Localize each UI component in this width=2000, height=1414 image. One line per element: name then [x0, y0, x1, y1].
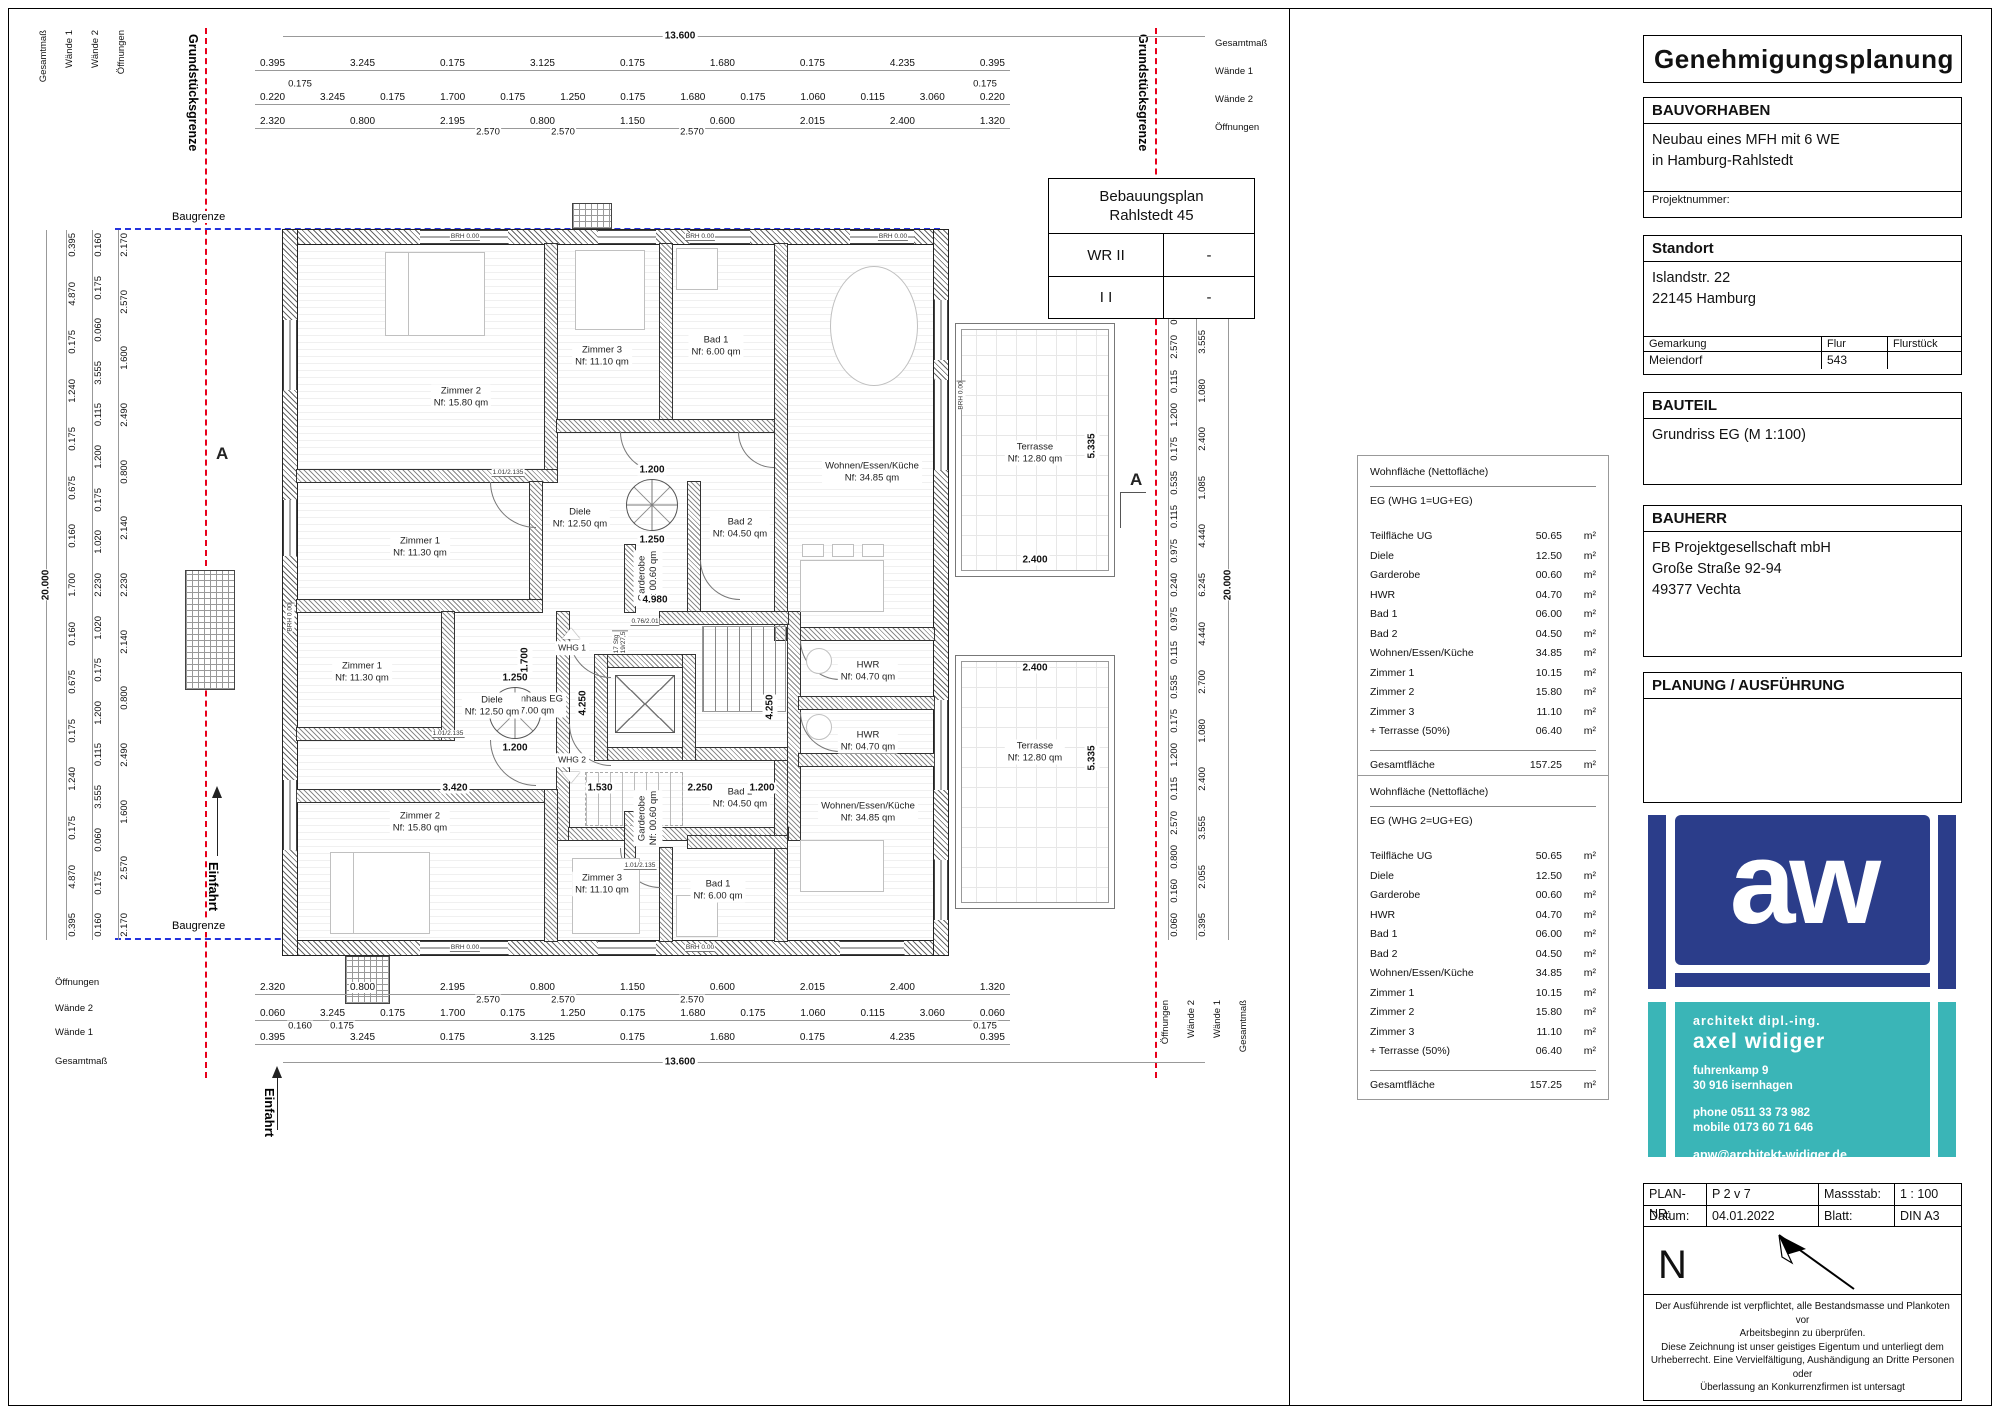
- logo-bar-under: [1675, 973, 1930, 987]
- wf1-rows: Teilfläche UG50.65m²Diele12.50m²Garderob…: [1370, 527, 1596, 742]
- wf1-total-unit: m²: [1562, 759, 1596, 771]
- teal-bar-left: [1648, 1002, 1666, 1157]
- dim-sub: 2.570: [550, 995, 576, 1006]
- wall-segment: [688, 748, 787, 760]
- logo-bar-left: [1648, 815, 1666, 989]
- room-label: Terrasse Nf: 12.80 qm: [1005, 441, 1065, 466]
- chain-label: Wände 1: [64, 30, 75, 68]
- flur-value: 543: [1822, 352, 1887, 369]
- wall-segment: [775, 244, 787, 640]
- chain-label: Wände 2: [1215, 94, 1253, 105]
- dim-total-bottom: 13.600: [663, 1057, 698, 1068]
- wf1-total-label: Gesamtfläche: [1370, 759, 1516, 771]
- chain-label: Öffnungen: [1215, 122, 1259, 133]
- bplan-row1-value: -: [1164, 234, 1254, 276]
- spiral-stair-symbol: [626, 479, 678, 531]
- planung-body: [1644, 699, 1961, 711]
- blatt-value: DIN A3: [1894, 1206, 1961, 1226]
- einfahrt-arrow-line: [217, 792, 218, 856]
- washer: [806, 648, 832, 674]
- dim: 5.335: [1085, 433, 1100, 458]
- section-marker-a-right: A: [1130, 470, 1142, 490]
- window-tag: BRH 0.00: [685, 944, 715, 952]
- room-label: Zimmer 1 Nf: 11.30 qm: [390, 535, 450, 560]
- dim: 5.335: [1085, 745, 1100, 770]
- dim-chain-left-w1: 0.3954.8700.1751.2400.1750.6750.1601.700…: [66, 230, 78, 940]
- dim: 4.250: [576, 690, 591, 715]
- bplan-row2-key: I I: [1049, 277, 1164, 318]
- wf2-total-label: Gesamtfläche: [1370, 1079, 1516, 1091]
- wall-segment: [545, 244, 557, 470]
- dim-chain-top-w1: 0.3953.2450.1753.1250.1751.6800.1754.235…: [255, 58, 1010, 71]
- terrace-bottom: [955, 655, 1115, 909]
- architect-phone: phone 0511 33 73 982: [1693, 1106, 1930, 1121]
- whg1-triangle: [562, 628, 580, 639]
- room-label: Diele Nf: 12.50 qm: [462, 694, 522, 719]
- dim-sub: 0.175: [972, 79, 998, 90]
- dim-sub: 2.570: [550, 127, 576, 138]
- terrace-door: [934, 380, 948, 470]
- stair-tag: 17 Stg 19/27,5: [612, 631, 628, 654]
- chain-label: Gesamtmaß: [1215, 38, 1267, 49]
- bed: [575, 250, 645, 330]
- chain-label: Wände 1: [55, 1027, 93, 1038]
- architect-addr2: 30 916 isernhagen: [1693, 1079, 1930, 1094]
- dim-sub: 2.570: [475, 127, 501, 138]
- chain-label: Wände 2: [1186, 1000, 1197, 1038]
- bauteil-box: BAUTEIL Grundriss EG (M 1:100): [1643, 392, 1962, 485]
- window: [283, 500, 297, 556]
- dim-chain-right-small: 0.0600.1600.8002.5700.1151.2000.1750.535…: [1168, 230, 1180, 940]
- dim: 3.420: [440, 783, 469, 794]
- dim-sub: 0.175: [972, 1021, 998, 1032]
- bauherr-header: BAUHERR: [1644, 506, 1961, 532]
- dim: 1.200: [500, 743, 529, 754]
- dim-line: [283, 36, 1205, 37]
- wf2-title: Wohnfläche (Nettofläche): [1370, 786, 1596, 807]
- window: [598, 230, 656, 244]
- room-label: Zimmer 3 Nf: 11.10 qm: [572, 344, 632, 369]
- elevator-cab: [615, 675, 675, 733]
- dining-table: [800, 840, 884, 892]
- dim: 1.700: [518, 647, 533, 672]
- exterior-grid: [572, 203, 612, 229]
- disclaimer-text: Der Ausführende ist verpflichtet, alle B…: [1643, 1295, 1962, 1401]
- wall-segment: [545, 790, 557, 941]
- dim-sub: 0.175: [329, 1021, 355, 1032]
- dim-chain-bottom-w2: 0.0603.2450.1751.7000.1751.2500.1751.680…: [255, 1008, 1010, 1021]
- dim-sub: 2.570: [679, 127, 705, 138]
- dim-sub: 0.160: [287, 1021, 313, 1032]
- window: [598, 941, 656, 955]
- terrace-door: [934, 700, 948, 790]
- wall-segment: [660, 848, 672, 941]
- room-label: Bad 1 Nf: 6.00 qm: [688, 334, 743, 359]
- wall-segment: [688, 482, 700, 612]
- gemarkung-label: Gemarkung: [1644, 337, 1821, 352]
- dining-table: [800, 560, 884, 612]
- room-label: Diele Nf: 12.50 qm: [550, 506, 610, 531]
- architect-mobile: mobile 0173 60 71 646: [1693, 1121, 1930, 1136]
- dim-chain-bottom-w1: 0.3953.2450.1753.1250.1751.6800.1754.235…: [255, 1032, 1010, 1045]
- exterior-grid: [345, 956, 390, 1004]
- chain-label: Wände 1: [1215, 66, 1253, 77]
- bauherr-box: BAUHERR FB Projektgesellschaft mbH Große…: [1643, 505, 1962, 657]
- dim: 1.200: [637, 465, 666, 476]
- exterior-stair-grid: [185, 570, 235, 690]
- window-tag: BRH 0.00: [685, 233, 715, 241]
- window-tag: BRH 0.00: [286, 602, 295, 631]
- flurstueck-label: Flurstück: [1888, 337, 1961, 352]
- washer: [806, 714, 832, 740]
- chair: [862, 544, 884, 557]
- plannr-value: P 2 v 7: [1706, 1184, 1818, 1205]
- wf2-total-unit: m²: [1562, 1079, 1596, 1091]
- architect-addr1: fuhrenkamp 9: [1693, 1064, 1930, 1079]
- wf2-total-value: 157.25: [1516, 1079, 1562, 1091]
- wall-segment: [775, 760, 787, 941]
- bed-pillow: [385, 252, 409, 336]
- section-marker-a-left: A: [216, 444, 228, 464]
- architect-name: axel widiger: [1693, 1030, 1930, 1054]
- dim-total-top: 13.600: [663, 31, 698, 42]
- whg2-triangle: [562, 772, 580, 783]
- dim-chain-top-off: 2.3200.8002.1950.8001.1500.6002.0152.400…: [255, 116, 1010, 129]
- room-label: Zimmer 2 Nf: 15.80 qm: [390, 810, 450, 835]
- window-tag: BRH 0.00: [957, 380, 966, 409]
- standort-header: Standort: [1644, 236, 1961, 262]
- teal-bar-right: [1938, 1002, 1956, 1157]
- elevator-wall: [683, 655, 695, 760]
- wall-segment: [660, 612, 788, 624]
- room-label: HWR Nf: 04.70 qm: [838, 729, 898, 754]
- wf2-subtitle: EG (WHG 2=UG+EG): [1370, 815, 1596, 847]
- bauvorhaben-body: Neubau eines MFH mit 6 WE in Hamburg-Rah…: [1644, 124, 1961, 191]
- door-tag: 1.01/2.135: [492, 469, 525, 477]
- dim-sub: 0.175: [287, 79, 313, 90]
- window-tag: BRH 0.00: [878, 233, 908, 241]
- window-tag: BRH 0.00: [450, 944, 480, 952]
- wf2-rows: Teilfläche UG50.65m²Diele12.50m²Garderob…: [1370, 847, 1596, 1062]
- wf2-total-row: Gesamtfläche 157.25 m²: [1370, 1070, 1596, 1091]
- door-tag: 0.76/2.01: [630, 618, 659, 626]
- chain-label: Wände 1: [1212, 1000, 1223, 1038]
- bauherr-body: FB Projektgesellschaft mbH Große Straße …: [1644, 532, 1961, 607]
- architect-card: architekt dipl.-ing. axel widiger fuhren…: [1675, 1002, 1930, 1157]
- standort-box: Standort Islandstr. 22 22145 Hamburg Gem…: [1643, 235, 1962, 375]
- bauteil-header: BAUTEIL: [1644, 393, 1961, 419]
- room-label: Bad 2 Nf: 04.50 qm: [710, 516, 770, 541]
- plan-type-title: Genehmigungsplanung: [1644, 36, 1961, 83]
- dim-chain-right-big: 0.3952.0553.5551.0802.4001.0854.4406.245…: [1196, 230, 1208, 940]
- flur-label: Flur: [1822, 337, 1887, 352]
- chair: [802, 544, 824, 557]
- room-label: HWR Nf: 04.70 qm: [838, 659, 898, 684]
- dim-total-left: 20.000: [39, 570, 54, 601]
- dim-sub: 2.570: [679, 995, 705, 1006]
- window: [283, 780, 297, 850]
- architect-email: apw@architekt-widiger.de: [1693, 1148, 1930, 1163]
- window-tag: BRH 0.00: [450, 233, 480, 241]
- room-label: Zimmer 1 Nf: 11.30 qm: [332, 660, 392, 685]
- wohnflaeche-table-whg1: Wohnfläche (Nettofläche) EG (WHG 1=UG+EG…: [1357, 455, 1609, 780]
- north-compass-box: N: [1643, 1225, 1962, 1295]
- dim-chain-top-w2: 0.2203.2450.1751.7000.1751.2500.1751.680…: [255, 92, 1010, 105]
- wall-segment: [787, 628, 934, 640]
- dim: 2.400: [1020, 663, 1049, 674]
- bauvorhaben-box: BAUVORHABEN Neubau eines MFH mit 6 WE in…: [1643, 97, 1962, 218]
- chain-label: Öffnungen: [55, 977, 99, 988]
- chair: [832, 544, 854, 557]
- whg2-label: WHG 2: [555, 753, 589, 767]
- table-oval: [830, 266, 918, 386]
- bauteil-body: Grundriss EG (M 1:100): [1644, 419, 1961, 452]
- shower: [676, 248, 718, 290]
- dim: 2.250: [685, 783, 714, 794]
- planung-box: PLANUNG / AUSFÜHRUNG: [1643, 672, 1962, 803]
- dim: 4.980: [640, 595, 669, 606]
- dim-chain-left-off: 2.1702.5701.6002.4900.8002.1402.2302.140…: [118, 230, 130, 940]
- dim-total-right: 20.000: [1221, 570, 1236, 601]
- chain-label: Gesamtmaß: [38, 30, 49, 82]
- wall-segment: [688, 836, 787, 848]
- wohnflaeche-table-whg2: Wohnfläche (Nettofläche) EG (WHG 2=UG+EG…: [1357, 775, 1609, 1100]
- plan-type-box: Genehmigungsplanung: [1643, 35, 1962, 83]
- property-line-label-left: Grundstücksgrenze: [186, 34, 200, 151]
- plannr-key: PLAN-NR:: [1644, 1184, 1706, 1205]
- projektnummer-label: Projektnummer:: [1644, 191, 1961, 208]
- wall-segment: [297, 728, 442, 740]
- room-label: Wohnen/Essen/Küche Nf: 34.85 qm: [822, 460, 922, 485]
- logo-bar-right: [1938, 815, 1956, 989]
- datum-key: Datum:: [1644, 1206, 1706, 1226]
- wall-segment: [660, 244, 672, 420]
- gemarkung-value: Meiendorf: [1644, 352, 1821, 369]
- chain-label: Öffnungen: [1160, 1000, 1171, 1044]
- chain-label: Gesamtmaß: [1238, 1000, 1249, 1052]
- planung-header: PLANUNG / AUSFÜHRUNG: [1644, 673, 1961, 699]
- aw-monogram: aw: [1730, 833, 1875, 933]
- architect-role: architekt dipl.-ing.: [1693, 1014, 1930, 1028]
- dim-line: [283, 1062, 1205, 1063]
- wall-segment: [297, 600, 542, 612]
- wall-segment: [442, 612, 454, 740]
- north-letter: N: [1658, 1243, 1687, 1288]
- standort-body: Islandstr. 22 22145 Hamburg: [1644, 262, 1961, 336]
- wf1-total-row: Gesamtfläche 157.25 m²: [1370, 750, 1596, 771]
- room-label: Terrasse Nf: 12.80 qm: [1005, 740, 1065, 765]
- dim-chain-bottom-off: 2.3200.8002.1950.8001.1500.6002.0152.400…: [255, 982, 1010, 995]
- einfahrt-label: Einfahrt: [206, 862, 221, 911]
- bebauungsplan-table: Bebauungsplan Rahlstedt 45 WR II - I I -: [1048, 178, 1255, 319]
- bebauungsplan-title: Bebauungsplan Rahlstedt 45: [1049, 179, 1254, 234]
- section-marker-line: [1120, 492, 1146, 528]
- room-label: Garderobe Nf: 00.60 qm: [634, 790, 663, 846]
- dim: 1.250: [500, 673, 529, 684]
- gemarkung-table: Gemarkung Meiendorf Flur 543 Flurstück: [1644, 336, 1961, 369]
- wf1-subtitle: EG (WHG 1=UG+EG): [1370, 495, 1596, 527]
- dim: 1.530: [585, 783, 614, 794]
- datum-value: 04.01.2022: [1706, 1206, 1818, 1226]
- dim: 1.200: [747, 783, 776, 794]
- wall-segment: [788, 612, 800, 840]
- window: [934, 300, 948, 360]
- dim-sub: 2.570: [475, 995, 501, 1006]
- einfahrt-arrow-head: [212, 786, 222, 798]
- blatt-key: Blatt:: [1818, 1206, 1894, 1226]
- bplan-row1-key: WR II: [1049, 234, 1164, 276]
- room-label: Zimmer 3 Nf: 11.10 qm: [572, 872, 632, 897]
- plan-number-table: PLAN-NR: P 2 v 7 Massstab: 1 : 100 Datum…: [1643, 1183, 1962, 1227]
- dim: 2.400: [1020, 555, 1049, 566]
- window: [283, 320, 297, 390]
- chain-label: Gesamtmaß: [55, 1056, 107, 1067]
- property-line-label-right: Grundstücksgrenze: [1136, 34, 1150, 151]
- whg1-label: WHG 1: [555, 641, 589, 655]
- wall-segment: [297, 790, 557, 802]
- massstab-key: Massstab:: [1818, 1184, 1894, 1205]
- chain-label: Wände 2: [90, 30, 101, 68]
- door-tag: 1.01/2.135: [624, 862, 657, 870]
- window: [840, 941, 904, 955]
- einfahrt-arrow-head: [272, 1066, 282, 1078]
- flurstueck-value: [1888, 352, 1961, 369]
- window: [934, 860, 948, 920]
- north-arrow-icon: [1734, 1227, 1884, 1293]
- baugrenze-label-top: Baugrenze: [170, 211, 227, 223]
- room-label: Bad 1 Nf: 6.00 qm: [690, 878, 745, 903]
- wf1-total-value: 157.25: [1516, 759, 1562, 771]
- baugrenze-label-bottom: Baugrenze: [170, 920, 227, 932]
- massstab-value: 1 : 100: [1894, 1184, 1961, 1205]
- room-label: Wohnen/Essen/Küche Nf: 34.85 qm: [818, 800, 918, 825]
- einfahrt-arrow-line: [277, 1072, 278, 1130]
- dim: 4.250: [763, 694, 778, 719]
- chain-label: Öffnungen: [116, 30, 127, 74]
- chain-label: Wände 2: [55, 1003, 93, 1014]
- room-label: Zimmer 2 Nf: 15.80 qm: [431, 385, 491, 410]
- wall-segment: [557, 420, 787, 432]
- wf1-title: Wohnfläche (Nettofläche): [1370, 466, 1596, 487]
- dim-chain-left-w2: 0.1600.1750.0603.5550.1151.2000.1751.020…: [92, 230, 104, 940]
- dim: 1.250: [637, 535, 666, 546]
- bplan-row2-value: -: [1164, 277, 1254, 318]
- wall-segment: [799, 697, 934, 709]
- bauvorhaben-header: BAUVORHABEN: [1644, 98, 1961, 124]
- door-tag: 1.01/2.135: [432, 730, 465, 738]
- aw-logo: aw: [1675, 815, 1930, 965]
- einfahrt-label: Einfahrt: [262, 1088, 277, 1137]
- wall-segment: [799, 754, 934, 766]
- bed-pillow: [330, 852, 354, 934]
